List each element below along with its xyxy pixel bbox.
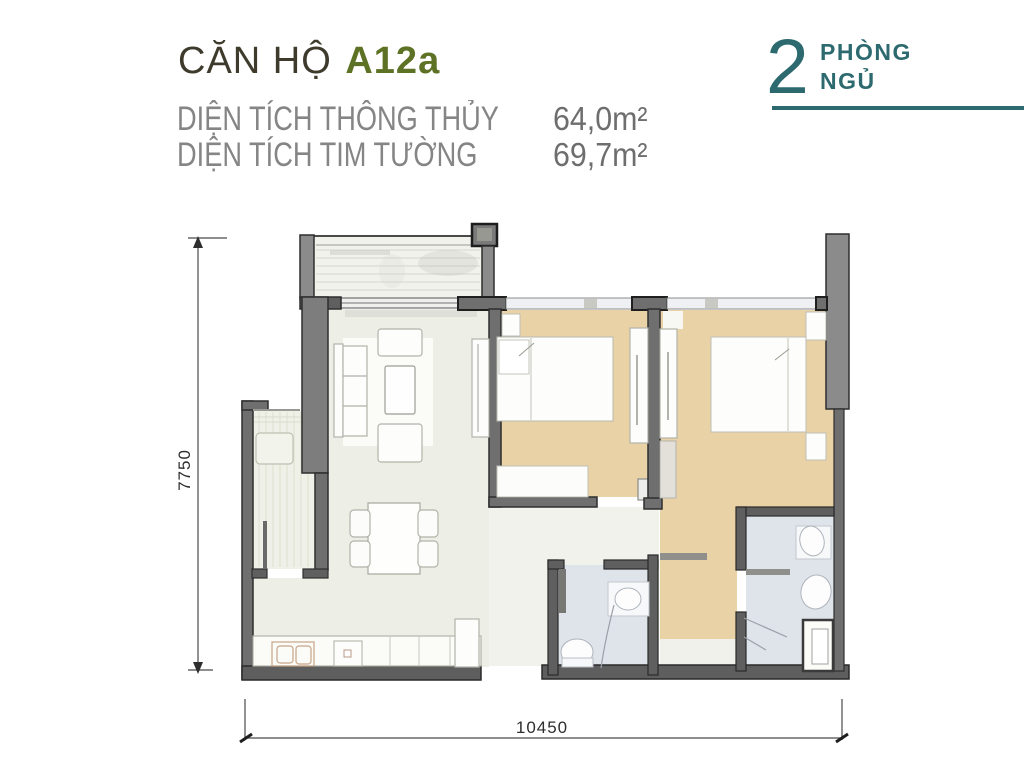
svg-text:7750: 7750: [175, 449, 194, 491]
svg-text:10450: 10450: [516, 718, 568, 737]
